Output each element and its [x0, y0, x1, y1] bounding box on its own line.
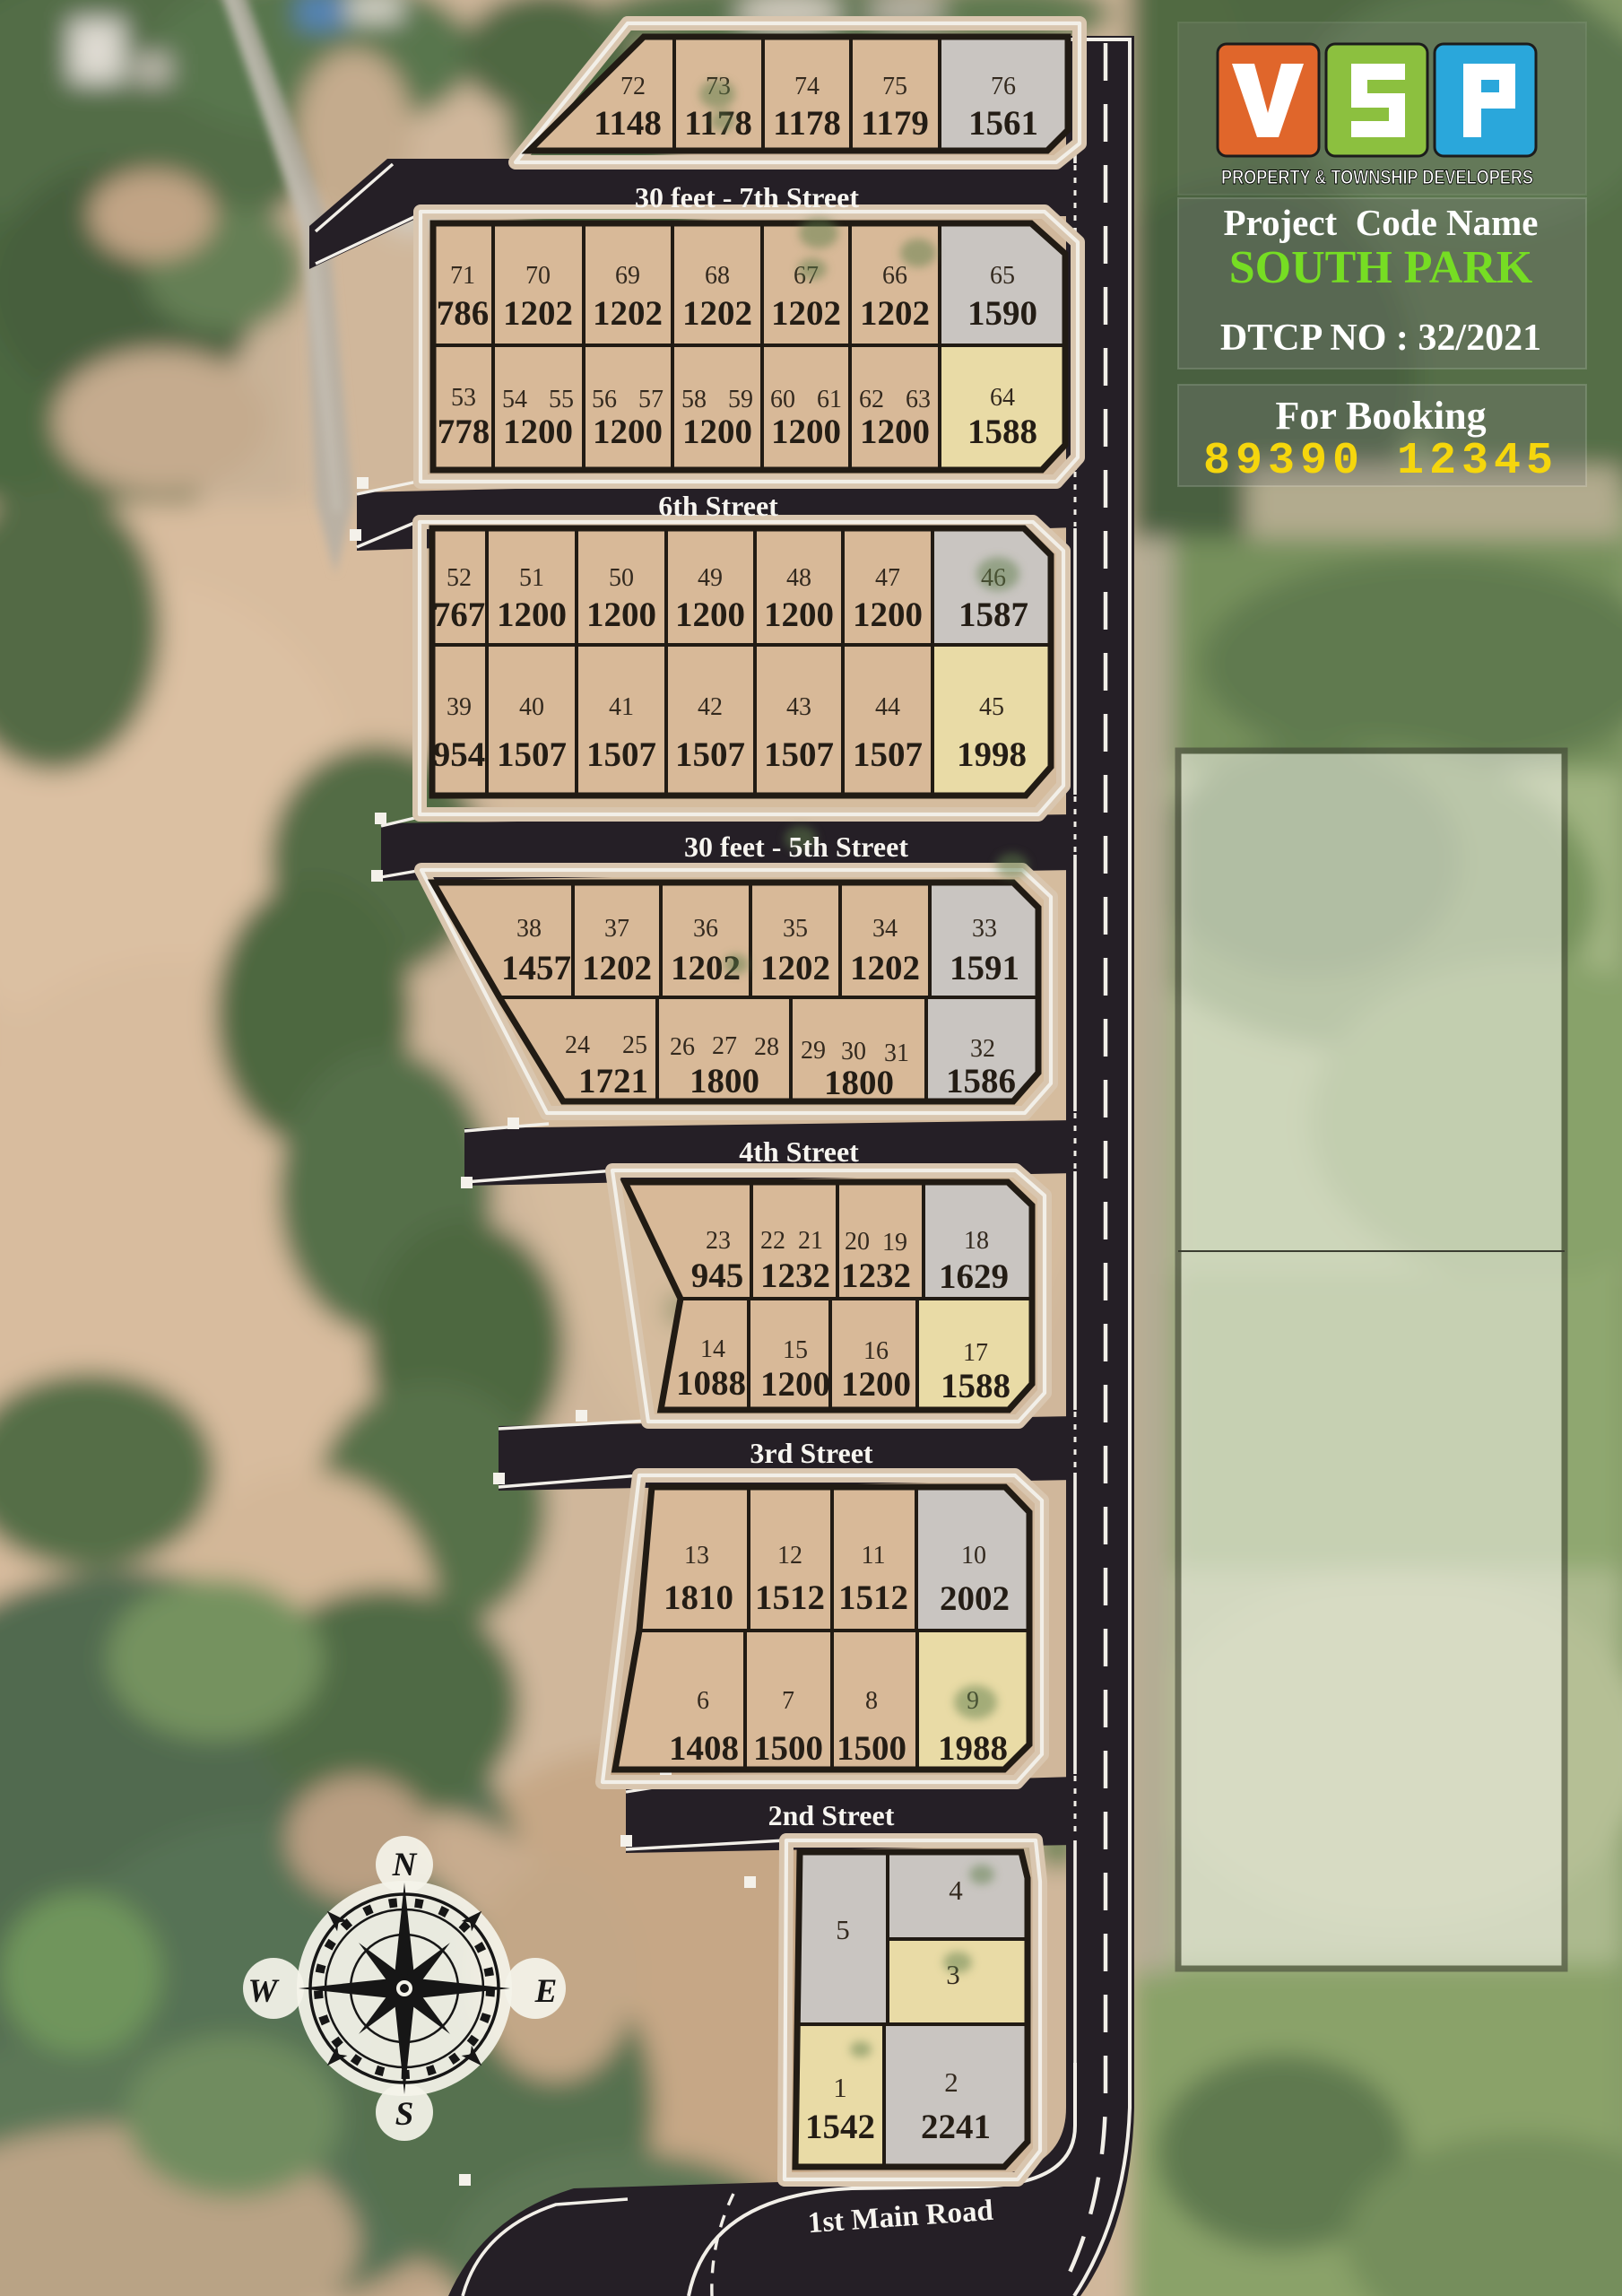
svg-text:58: 58 — [681, 386, 707, 413]
svg-text:1512: 1512 — [838, 1578, 908, 1617]
svg-text:S: S — [395, 2096, 414, 2133]
svg-text:7: 7 — [782, 1687, 794, 1715]
svg-text:1507: 1507 — [764, 735, 834, 774]
svg-text:1178: 1178 — [773, 104, 841, 143]
svg-text:65: 65 — [990, 262, 1015, 290]
svg-text:E: E — [534, 1973, 558, 2010]
svg-text:2241: 2241 — [921, 2108, 991, 2146]
svg-text:70: 70 — [525, 262, 551, 290]
svg-text:54: 54 — [502, 386, 527, 413]
svg-text:25: 25 — [622, 1031, 647, 1059]
svg-text:72: 72 — [620, 73, 646, 100]
svg-text:SOUTH PARK: SOUTH PARK — [1229, 242, 1533, 293]
svg-text:1507: 1507 — [497, 735, 567, 774]
svg-text:1232: 1232 — [760, 1257, 830, 1295]
svg-text:50: 50 — [609, 564, 634, 592]
svg-text:20: 20 — [845, 1228, 870, 1256]
svg-text:33: 33 — [972, 915, 997, 943]
svg-text:1179: 1179 — [861, 104, 929, 143]
svg-text:3rd Street: 3rd Street — [750, 1437, 872, 1469]
svg-text:49: 49 — [698, 564, 723, 592]
svg-text:1588: 1588 — [967, 413, 1037, 451]
svg-text:41: 41 — [609, 693, 634, 721]
svg-text:52: 52 — [447, 564, 472, 592]
svg-text:1561: 1561 — [968, 104, 1038, 143]
svg-text:1512: 1512 — [755, 1578, 825, 1617]
svg-text:DTCP NO : 32/2021: DTCP NO : 32/2021 — [1220, 317, 1541, 359]
svg-text:1200: 1200 — [497, 596, 567, 634]
svg-text:44: 44 — [875, 693, 900, 721]
svg-text:PROPERTY & TOWNSHIP DEVELOPERS: PROPERTY & TOWNSHIP DEVELOPERS — [1221, 166, 1533, 188]
svg-text:31: 31 — [884, 1039, 909, 1067]
svg-text:1507: 1507 — [586, 735, 656, 774]
svg-text:1202: 1202 — [860, 294, 930, 333]
svg-text:1542: 1542 — [805, 2108, 875, 2146]
svg-text:1200: 1200 — [760, 1365, 830, 1404]
svg-text:18: 18 — [964, 1227, 989, 1255]
svg-text:1721: 1721 — [578, 1062, 648, 1100]
svg-text:954: 954 — [433, 735, 486, 774]
svg-text:786: 786 — [437, 294, 490, 333]
svg-text:1200: 1200 — [841, 1365, 911, 1404]
svg-text:43: 43 — [786, 693, 811, 721]
svg-text:27: 27 — [712, 1032, 737, 1060]
svg-text:55: 55 — [549, 386, 574, 413]
svg-text:1200: 1200 — [682, 413, 752, 451]
svg-text:14: 14 — [700, 1335, 725, 1363]
svg-text:1408: 1408 — [669, 1729, 739, 1768]
svg-text:1998: 1998 — [957, 735, 1027, 774]
svg-text:4th Street: 4th Street — [739, 1135, 859, 1168]
svg-text:1: 1 — [833, 2072, 847, 2103]
svg-text:2nd Street: 2nd Street — [768, 1799, 895, 1831]
svg-text:1586: 1586 — [946, 1062, 1016, 1100]
svg-text:767: 767 — [433, 596, 486, 634]
svg-text:22: 22 — [760, 1227, 785, 1255]
svg-text:59: 59 — [728, 386, 753, 413]
svg-text:17: 17 — [963, 1339, 988, 1367]
svg-text:12: 12 — [777, 1542, 802, 1570]
svg-text:24: 24 — [565, 1031, 590, 1059]
svg-text:37: 37 — [604, 915, 629, 943]
svg-text:1988: 1988 — [938, 1729, 1008, 1768]
svg-text:40: 40 — [519, 693, 544, 721]
svg-text:1200: 1200 — [853, 596, 923, 634]
svg-text:1232: 1232 — [841, 1257, 911, 1295]
svg-text:71: 71 — [450, 262, 475, 290]
svg-text:1200: 1200 — [503, 413, 573, 451]
svg-text:57: 57 — [638, 386, 664, 413]
svg-text:39: 39 — [447, 693, 472, 721]
svg-text:1202: 1202 — [850, 949, 920, 987]
svg-text:69: 69 — [615, 262, 640, 290]
svg-text:1507: 1507 — [853, 735, 923, 774]
svg-text:61: 61 — [817, 386, 842, 413]
svg-text:1202: 1202 — [593, 294, 663, 333]
svg-text:10: 10 — [961, 1542, 986, 1570]
svg-text:1088: 1088 — [676, 1364, 746, 1403]
svg-text:38: 38 — [516, 915, 542, 943]
svg-text:1202: 1202 — [503, 294, 573, 333]
svg-text:36: 36 — [693, 915, 718, 943]
svg-text:1588: 1588 — [941, 1367, 1010, 1405]
svg-text:74: 74 — [794, 73, 820, 100]
svg-text:60: 60 — [770, 386, 795, 413]
svg-text:28: 28 — [754, 1033, 779, 1061]
svg-text:68: 68 — [705, 262, 730, 290]
svg-text:21: 21 — [798, 1227, 823, 1255]
svg-text:15: 15 — [783, 1336, 808, 1364]
svg-text:35: 35 — [783, 915, 808, 943]
svg-text:47: 47 — [875, 564, 900, 592]
svg-text:1200: 1200 — [764, 596, 834, 634]
svg-text:8: 8 — [865, 1687, 878, 1715]
svg-text:1800: 1800 — [824, 1064, 894, 1102]
svg-text:19: 19 — [882, 1229, 907, 1257]
svg-text:75: 75 — [882, 73, 907, 100]
svg-text:76: 76 — [991, 73, 1016, 100]
svg-text:5: 5 — [836, 1914, 850, 1945]
svg-text:26: 26 — [670, 1033, 695, 1061]
svg-text:945: 945 — [691, 1257, 744, 1295]
svg-text:1587: 1587 — [958, 596, 1028, 634]
svg-text:48: 48 — [786, 564, 811, 592]
svg-text:30 feet - 7th Street: 30 feet - 7th Street — [635, 181, 859, 213]
svg-text:64: 64 — [990, 384, 1015, 412]
svg-text:For Booking: For Booking — [1275, 394, 1486, 438]
svg-text:1202: 1202 — [771, 294, 841, 333]
svg-text:13: 13 — [684, 1542, 709, 1570]
svg-text:1500: 1500 — [837, 1729, 906, 1768]
svg-text:34: 34 — [872, 915, 898, 943]
svg-text:1200: 1200 — [860, 413, 930, 451]
svg-text:23: 23 — [706, 1227, 731, 1255]
svg-text:1200: 1200 — [675, 596, 745, 634]
svg-text:1200: 1200 — [593, 413, 663, 451]
svg-text:66: 66 — [882, 262, 907, 290]
svg-text:1500: 1500 — [753, 1729, 823, 1768]
svg-text:51: 51 — [519, 564, 544, 592]
svg-text:29: 29 — [801, 1037, 826, 1065]
svg-text:1202: 1202 — [682, 294, 752, 333]
svg-text:1591: 1591 — [950, 949, 1019, 987]
svg-text:42: 42 — [698, 693, 723, 721]
svg-text:45: 45 — [979, 693, 1004, 721]
svg-text:N: N — [392, 1847, 418, 1883]
svg-text:56: 56 — [592, 386, 617, 413]
svg-text:1507: 1507 — [675, 735, 745, 774]
svg-text:1202: 1202 — [760, 949, 830, 987]
svg-text:1200: 1200 — [586, 596, 656, 634]
svg-text:1457: 1457 — [501, 949, 571, 987]
svg-text:1800: 1800 — [690, 1062, 759, 1100]
svg-text:1148: 1148 — [594, 104, 662, 143]
svg-text:2: 2 — [944, 2066, 958, 2098]
svg-text:11: 11 — [862, 1542, 886, 1570]
svg-text:1810: 1810 — [664, 1578, 733, 1617]
svg-text:32: 32 — [970, 1035, 995, 1063]
svg-text:1629: 1629 — [939, 1257, 1009, 1296]
svg-text:89390 12345: 89390 12345 — [1203, 436, 1558, 487]
svg-text:4: 4 — [949, 1874, 963, 1906]
svg-text:30: 30 — [841, 1038, 866, 1065]
svg-text:1590: 1590 — [967, 294, 1037, 333]
svg-text:62: 62 — [859, 386, 884, 413]
svg-text:2002: 2002 — [940, 1579, 1010, 1618]
svg-text:16: 16 — [863, 1337, 889, 1365]
svg-text:6th Street: 6th Street — [658, 490, 778, 522]
svg-text:63: 63 — [906, 386, 931, 413]
svg-text:1202: 1202 — [582, 949, 652, 987]
svg-text:W: W — [248, 1973, 281, 2010]
svg-text:53: 53 — [451, 384, 476, 412]
svg-text:Project Code Name: Project Code Name — [1223, 202, 1538, 243]
svg-text:6: 6 — [697, 1687, 709, 1715]
svg-text:1200: 1200 — [771, 413, 841, 451]
svg-text:778: 778 — [438, 413, 490, 451]
svg-text:30 feet - 5th Street: 30 feet - 5th Street — [684, 831, 908, 863]
